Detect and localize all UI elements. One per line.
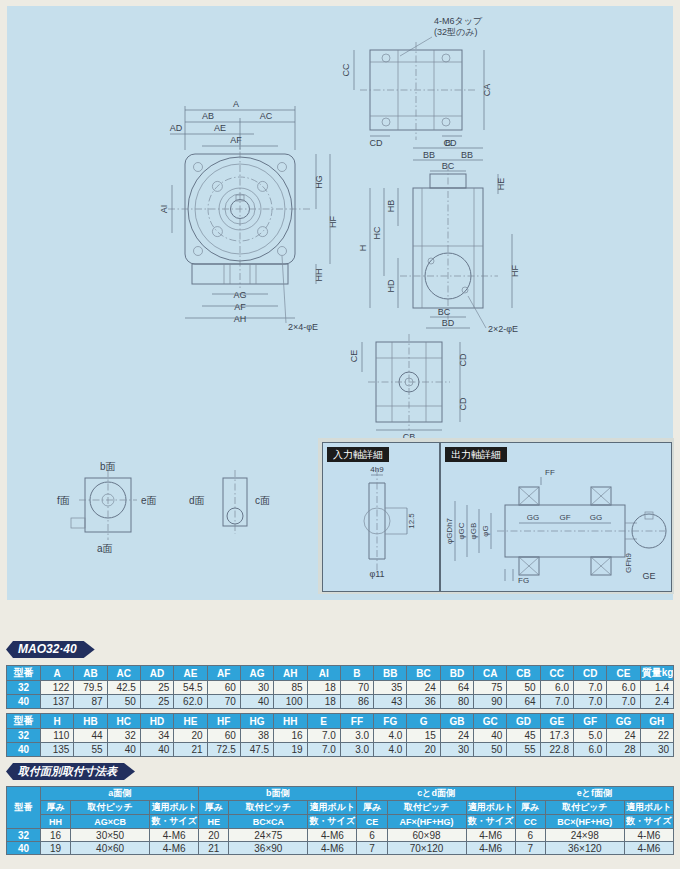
column-header: BC×(HF+HG): [545, 815, 624, 829]
table-cell: 36×120: [545, 842, 624, 855]
table-cell: 7.0: [307, 743, 340, 757]
dim-label: AB: [202, 111, 214, 121]
table-cell: 22: [640, 729, 673, 743]
table-cell: 22.8: [540, 743, 573, 757]
dim-label: φ11: [369, 569, 384, 579]
table-cell: 1.4: [640, 681, 673, 695]
column-header: AF: [207, 666, 240, 681]
table-cell: 135: [41, 743, 74, 757]
face-label-d: d面: [189, 495, 205, 506]
column-header: AG×CB: [71, 815, 150, 829]
column-header: 厚み: [199, 801, 229, 815]
table-cell: 62.0: [174, 695, 207, 709]
dim-label: HE: [496, 178, 506, 191]
column-header: AI: [307, 666, 340, 681]
shaft-detail-section: 入力軸詳細 4h9 12.5 φ11 出力軸詳細 φGDh7 φGC: [318, 438, 674, 594]
column-header: GE: [540, 714, 573, 729]
dim-label: FG: [518, 576, 529, 585]
column-header: 数・サイズ: [466, 815, 515, 829]
table-cell: 7.0: [574, 681, 607, 695]
table-cell: 36×90: [229, 842, 308, 855]
dim-label: AH: [234, 314, 247, 324]
dim-label: AC: [260, 111, 273, 121]
dim-label: AF: [234, 302, 246, 312]
column-header: 取付ピッチ: [545, 801, 624, 815]
table-cell: 24: [407, 681, 440, 695]
group-header-row: 型番 a面側 b面側 cとd面側 eとf面側: [7, 787, 674, 801]
tap-note-line2: (32型のみ): [434, 27, 477, 37]
dim-label: GF: [559, 513, 570, 522]
table-cell: 86: [340, 695, 373, 709]
column-header: 取付ピッチ: [229, 801, 308, 815]
dim-label: HG: [314, 175, 324, 189]
column-header: HE: [174, 714, 207, 729]
column-header: BC: [407, 666, 440, 681]
dim-label: AF: [230, 135, 242, 145]
table-cell: 21: [199, 842, 229, 855]
column-header: HH: [41, 815, 71, 829]
table-cell: 4-M6: [624, 829, 673, 842]
face-orientation-views: b面 f面 e面 a面 d面 c面: [55, 440, 320, 585]
table-cell: 70×120: [387, 842, 466, 855]
table-cell: 16: [274, 729, 307, 743]
face-label-c: c面: [255, 495, 270, 506]
table-cell: 7: [357, 842, 387, 855]
column-header: CD: [574, 666, 607, 681]
dim-label: GG: [590, 513, 602, 522]
column-header: HG: [240, 714, 273, 729]
table-cell: 72.5: [207, 743, 240, 757]
column-header: BB: [374, 666, 407, 681]
column-header: H: [41, 714, 74, 729]
table-cell: 40: [140, 743, 173, 757]
table-cell: 3.0: [340, 743, 373, 757]
table-cell: 17.3: [540, 729, 573, 743]
column-header: 取付ピッチ: [71, 801, 150, 815]
dim-label: H: [358, 245, 368, 252]
dim-label: CC: [341, 63, 351, 76]
column-header: BD: [440, 666, 473, 681]
dim-label: φGC: [457, 522, 466, 539]
column-header: A: [41, 666, 74, 681]
table-cell: 2.4: [640, 695, 673, 709]
dim-label: HB: [386, 200, 396, 213]
table-cell: 137: [41, 695, 74, 709]
table-cell: 7.0: [307, 729, 340, 743]
table-row: 32 12279.542.52554.560308518703524647550…: [7, 681, 674, 695]
column-header: FG: [374, 714, 407, 729]
table-cell: 79.5: [74, 681, 107, 695]
column-header: AC: [107, 666, 140, 681]
column-header: 取付ピッチ: [387, 801, 466, 815]
table-cell: 25: [140, 681, 173, 695]
table-cell: 24: [440, 729, 473, 743]
table-cell: 54.5: [174, 681, 207, 695]
input-shaft-drawing: 4h9 12.5 φ11: [323, 463, 439, 589]
output-shaft-detail-panel: 出力軸詳細 φGDh7 φGC φGB φG: [440, 442, 672, 592]
dim-label: AI: [159, 205, 169, 214]
table-cell: 4-M6: [308, 829, 357, 842]
face-label-e: e面: [141, 495, 157, 506]
group-header: b面側: [199, 787, 357, 801]
table-row: 32 110443234206038167.03.04.01524404517.…: [7, 729, 674, 743]
dim-label: GE: [642, 571, 655, 581]
column-header: AE: [174, 666, 207, 681]
group-header: a面側: [41, 787, 199, 801]
table-cell: 30: [240, 681, 273, 695]
table-row: 32 1630×504-M62024×754-M6660×984-M6624×9…: [7, 829, 674, 842]
table-cell: 25: [140, 695, 173, 709]
column-header: CC: [540, 666, 573, 681]
column-header: 数・サイズ: [624, 815, 673, 829]
column-header: AD: [140, 666, 173, 681]
model-column-header: 型番: [7, 787, 41, 829]
column-header: 適用ボルト: [308, 801, 357, 815]
table-cell: 30×50: [71, 829, 150, 842]
column-header: CC: [515, 815, 545, 829]
table-cell: 24×98: [545, 829, 624, 842]
model-cell: 32: [7, 729, 41, 743]
column-header: 数・サイズ: [150, 815, 199, 829]
dim-label: B: [445, 138, 451, 148]
table-cell: 34: [140, 729, 173, 743]
model-cell: 40: [7, 743, 41, 757]
column-header: CB: [507, 666, 540, 681]
dim-label: CD: [458, 397, 468, 410]
table-cell: 6: [357, 829, 387, 842]
column-header: GD: [507, 714, 540, 729]
dim-label: 12.5: [407, 513, 416, 529]
table-cell: 87: [74, 695, 107, 709]
model-badge: MAO32·40: [6, 641, 95, 658]
dim-label: A: [233, 99, 239, 109]
column-header: GB: [440, 714, 473, 729]
symbol-header-row: HH AG×CB 数・サイズ HE BC×CA 数・サイズ CE AF×(HF+…: [7, 815, 674, 829]
table-cell: 45: [507, 729, 540, 743]
table-cell: 19: [41, 842, 71, 855]
dim-label: AD: [170, 123, 183, 133]
table-cell: 7.0: [540, 695, 573, 709]
table-cell: 70: [207, 695, 240, 709]
column-header: CE: [357, 815, 387, 829]
column-header: 厚み: [515, 801, 545, 815]
table-cell: 122: [41, 681, 74, 695]
table-cell: 36: [407, 695, 440, 709]
table-cell: 60: [207, 681, 240, 695]
dimension-table-2: 型番 HHBHCHDHEHFHGHHEFFFGGGBGCGDGEGFGGGH 3…: [6, 713, 674, 757]
table-cell: 4-M6: [466, 842, 515, 855]
table-cell: 32: [107, 729, 140, 743]
table-cell: 7.0: [574, 695, 607, 709]
table-cell: 4-M6: [624, 842, 673, 855]
table-cell: 7: [515, 842, 545, 855]
table-cell: 4-M6: [466, 829, 515, 842]
dim-label: φGDh7: [445, 517, 454, 544]
table-cell: 50: [507, 681, 540, 695]
column-header: AH: [274, 666, 307, 681]
dimension-table-1: 型番 AABACADAEAFAGAHAIBBBBCBDCACBCCCDCE質量k…: [6, 665, 674, 709]
table-cell: 20: [407, 743, 440, 757]
table-cell: 4-M6: [150, 842, 199, 855]
table-cell: 85: [274, 681, 307, 695]
column-header: FF: [340, 714, 373, 729]
table-cell: 15: [407, 729, 440, 743]
model-cell: 32: [7, 681, 41, 695]
table-cell: 21: [174, 743, 207, 757]
column-header: GH: [640, 714, 673, 729]
table-cell: 40×60: [71, 842, 150, 855]
column-header: AB: [74, 666, 107, 681]
column-header: GC: [474, 714, 507, 729]
column-header: 適用ボルト: [466, 801, 515, 815]
table-cell: 6: [515, 829, 545, 842]
table-cell: 43: [374, 695, 407, 709]
table-cell: 28: [607, 743, 640, 757]
column-header: AG: [240, 666, 273, 681]
table-cell: 40: [107, 743, 140, 757]
dim-label: HH: [314, 269, 324, 282]
table-cell: 75: [474, 681, 507, 695]
column-header: 厚み: [357, 801, 387, 815]
table-cell: 7.0: [607, 695, 640, 709]
table-cell: 6.0: [607, 681, 640, 695]
table-row: 40 1940×604-M62136×904-M6770×1204-M6736×…: [7, 842, 674, 855]
table-row: 40 1355540402172.547.5197.03.04.02030505…: [7, 743, 674, 757]
group-header: eとf面側: [515, 787, 673, 801]
model-column-header: 型番: [7, 666, 41, 681]
table-cell: 24×75: [229, 829, 308, 842]
dim-label: HF: [510, 265, 520, 277]
table-cell: 6.0: [540, 681, 573, 695]
table-cell: 6.0: [574, 743, 607, 757]
table-cell: 30: [440, 743, 473, 757]
table-cell: 4.0: [374, 729, 407, 743]
table-header-row: 型番 HHBHCHDHEHFHGHHEFFFGGGBGCGDGEGFGGGH: [7, 714, 674, 729]
column-header: 適用ボルト: [624, 801, 673, 815]
table-row: 40 13787502562.07040100188643368090647.0…: [7, 695, 674, 709]
face-label-b: b面: [100, 461, 116, 472]
dim-label: HD: [386, 279, 396, 292]
table-cell: 100: [274, 695, 307, 709]
dim-label: φGB: [469, 523, 478, 540]
mounting-table-badge: 取付面別取付寸法表: [6, 763, 135, 780]
group-header: cとd面側: [357, 787, 515, 801]
dim-label: BB: [461, 150, 473, 160]
column-header: AF×(HF+HG): [387, 815, 466, 829]
column-header: 厚み: [41, 801, 71, 815]
table-cell: 50: [474, 743, 507, 757]
table-cell: 40: [474, 729, 507, 743]
table-cell: 16: [41, 829, 71, 842]
column-header: HE: [199, 815, 229, 829]
column-header: HB: [74, 714, 107, 729]
column-header: GG: [607, 714, 640, 729]
side-view-drawing: B BB BB BC H HC HB HD HE HF BC BD 2×2-φE: [358, 138, 543, 338]
model-cell: 40: [7, 695, 41, 709]
table-cell: 60: [207, 729, 240, 743]
table-header-row: 型番 AABACADAEAFAGAHAIBBBBCBDCACBCCCDCE質量k…: [7, 666, 674, 681]
catalog-page: A AB AC AD AE AF AI HG HF HH AG AF: [0, 0, 680, 869]
column-header: HH: [274, 714, 307, 729]
table-cell: 47.5: [240, 743, 273, 757]
dim-label: BB: [423, 150, 435, 160]
table-cell: 4.0: [374, 743, 407, 757]
dim-label: HC: [372, 226, 382, 239]
column-header: G: [407, 714, 440, 729]
column-header: B: [340, 666, 373, 681]
table-cell: 20: [199, 829, 229, 842]
table-cell: 18: [307, 695, 340, 709]
table-cell: 55: [507, 743, 540, 757]
table-cell: 50: [107, 695, 140, 709]
table-cell: 90: [474, 695, 507, 709]
column-header: 数・サイズ: [308, 815, 357, 829]
dim-label: AG: [233, 290, 246, 300]
dim-label: φG: [481, 525, 490, 536]
mounting-dimension-table: 型番 a面側 b面側 cとd面側 eとf面側 厚み 取付ピッチ 適用ボルト 厚み…: [6, 786, 674, 855]
input-shaft-detail-panel: 入力軸詳細 4h9 12.5 φ11: [322, 442, 440, 592]
column-header: HF: [207, 714, 240, 729]
table-cell: 35: [374, 681, 407, 695]
sub-header-row: 厚み 取付ピッチ 適用ボルト 厚み 取付ピッチ 適用ボルト 厚み 取付ピッチ 適…: [7, 801, 674, 815]
hole-note: 2×4-φE: [288, 322, 318, 332]
front-view-drawing: A AB AC AD AE AF AI HG HF HH AG AF: [140, 92, 360, 334]
output-shaft-detail-title: 出力軸詳細: [445, 447, 507, 462]
dim-label: GFh9: [624, 552, 633, 573]
model-cell: 40: [7, 842, 41, 855]
top-view-drawing: 4-M6タップ (32型のみ) CC CA CD CD: [338, 12, 523, 148]
dim-label: CA: [482, 84, 492, 97]
table-cell: 3.0: [340, 729, 373, 743]
table-cell: 20: [174, 729, 207, 743]
table-cell: 5.0: [574, 729, 607, 743]
table-cell: 4-M6: [308, 842, 357, 855]
column-header: HD: [140, 714, 173, 729]
table-cell: 40: [240, 695, 273, 709]
bottom-view-drawing: CE CD CD CB: [348, 326, 518, 442]
column-header: BC×CA: [229, 815, 308, 829]
table-cell: 44: [74, 729, 107, 743]
model-column-header: 型番: [7, 714, 41, 729]
output-shaft-drawing: φGDh7 φGC φGB φG FF GG: [441, 461, 669, 589]
input-shaft-detail-title: 入力軸詳細: [327, 447, 389, 462]
column-header: E: [307, 714, 340, 729]
column-header: GF: [574, 714, 607, 729]
column-header: 質量kg: [640, 666, 673, 681]
table-cell: 64: [507, 695, 540, 709]
face-label-f: f面: [57, 495, 70, 506]
column-header: CE: [607, 666, 640, 681]
table-cell: 19: [274, 743, 307, 757]
table-cell: 70: [340, 681, 373, 695]
dim-label: CE: [349, 350, 359, 363]
column-header: 適用ボルト: [150, 801, 199, 815]
table-cell: 60×98: [387, 829, 466, 842]
table-cell: 24: [607, 729, 640, 743]
dim-label: GG: [527, 513, 539, 522]
table-cell: 30: [640, 743, 673, 757]
table-cell: 80: [440, 695, 473, 709]
dim-label: AE: [214, 123, 226, 133]
dim-label: FF: [545, 468, 555, 477]
tap-note-line1: 4-M6タップ: [434, 16, 483, 26]
column-header: HC: [107, 714, 140, 729]
model-cell: 32: [7, 829, 41, 842]
table-cell: 4-M6: [150, 829, 199, 842]
table-cell: 55: [74, 743, 107, 757]
table-cell: 38: [240, 729, 273, 743]
face-label-a: a面: [97, 543, 113, 554]
table-cell: 110: [41, 729, 74, 743]
table-cell: 42.5: [107, 681, 140, 695]
dim-label: HF: [328, 216, 338, 228]
column-header: CA: [474, 666, 507, 681]
dim-label: BC: [438, 307, 451, 317]
table-cell: 64: [440, 681, 473, 695]
dim-label: CD: [458, 353, 468, 366]
table-cell: 18: [307, 681, 340, 695]
